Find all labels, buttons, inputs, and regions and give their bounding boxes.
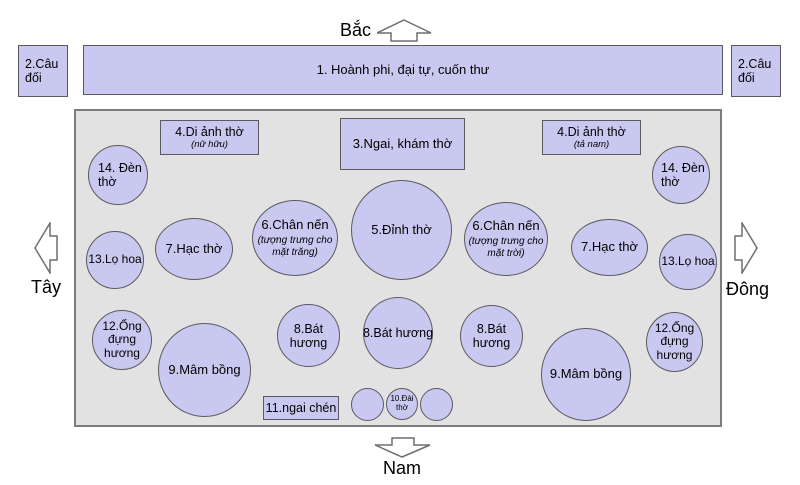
di-anh-right-box: 4.Di ảnh thờ (tả nam): [542, 120, 641, 155]
south-label: Nam: [383, 458, 421, 479]
chan-nen-right-title: 6.Chân nến: [472, 219, 539, 234]
den-tho-left-circle: 14. Đèn thờ: [88, 145, 148, 205]
ong-dung-huong-right-circle: 12.Ống đựng hương: [646, 312, 703, 372]
den-tho-right-label: 14. Đèn thờ: [661, 161, 707, 189]
lo-hoa-left-label: 13.Lọ hoa: [88, 253, 141, 266]
banner-box: 1. Hoành phi, đại tự, cuốn thư: [83, 45, 723, 95]
di-anh-right-subtitle: (tả nam): [574, 140, 609, 151]
ngai-chen-box: 11.ngai chén: [263, 396, 339, 420]
chan-nen-left-subtitle: (tượng trưng cho mặt trăng): [255, 235, 335, 258]
ngai-chen-label: 11.ngai chén: [266, 401, 337, 415]
di-anh-left-subtitle: (nữ hữu): [191, 140, 228, 151]
east-label: Đông: [726, 279, 769, 300]
chan-nen-left-title: 6.Chân nến: [261, 218, 328, 233]
mam-bong-right-circle: 9.Mâm bồng: [541, 328, 631, 421]
lo-hoa-left-circle: 13.Lọ hoa: [86, 231, 144, 289]
mam-bong-right-label: 9.Mâm bồng: [550, 367, 622, 382]
dai-tho-label: 10.Đài thờ: [387, 395, 417, 413]
chan-nen-left-circle: 6.Chân nến (tượng trưng cho mặt trăng): [252, 200, 338, 276]
hac-tho-right-label: 7.Hạc thờ: [581, 240, 638, 255]
bat-huong-left-label: 8.Bát hương: [280, 322, 337, 350]
hac-tho-left-ellipse: 7.Hạc thờ: [155, 218, 233, 280]
ngai-kham-label: 3.Ngai, khám thờ: [353, 137, 453, 152]
dinh-tho-label: 5.Đỉnh thờ: [371, 223, 432, 238]
west-arrow-icon: [34, 222, 58, 274]
di-anh-right-title: 4.Di ảnh thờ: [557, 125, 626, 139]
chan-nen-right-subtitle: (tượng trưng cho mặt trời): [467, 236, 545, 259]
bat-huong-center-circle: 8.Bát hương: [363, 297, 433, 369]
di-anh-left-title: 4.Di ảnh thờ: [175, 125, 244, 139]
hac-tho-left-label: 7.Hạc thờ: [166, 242, 223, 257]
ngai-kham-box: 3.Ngai, khám thờ: [340, 118, 465, 170]
north-label: Bắc: [340, 20, 371, 41]
couplet-right-box: 2.Câu đối: [731, 45, 781, 97]
bat-huong-right-circle: 8.Bát hương: [460, 305, 523, 367]
bat-huong-center-label: 8.Bát hương: [363, 326, 433, 340]
ong-dung-huong-right-label: 12.Ống đựng hương: [649, 322, 700, 362]
dai-tho-circle: 10.Đài thờ: [386, 388, 418, 420]
south-arrow-icon: [374, 437, 431, 458]
small-cup-right-circle: [420, 388, 453, 421]
mam-bong-left-label: 9.Mâm bồng: [168, 363, 240, 378]
altar-layout-diagram: Bắc 2.Câu đối 1. Hoành phi, đại tự, cuốn…: [0, 0, 800, 485]
den-tho-right-circle: 14. Đèn thờ: [652, 146, 710, 204]
mam-bong-left-circle: 9.Mâm bồng: [158, 323, 251, 417]
small-cup-left-circle: [351, 388, 384, 421]
couplet-left-label: 2.Câu đối: [25, 57, 65, 85]
north-arrow-icon: [377, 19, 432, 42]
hac-tho-right-ellipse: 7.Hạc thờ: [571, 219, 648, 276]
bat-huong-left-circle: 8.Bát hương: [277, 304, 340, 367]
chan-nen-right-circle: 6.Chân nến (tượng trưng cho mặt trời): [464, 202, 548, 276]
dinh-tho-circle: 5.Đỉnh thờ: [351, 180, 452, 280]
ong-dung-huong-left-label: 12.Ống đựng hương: [95, 320, 149, 360]
bat-huong-right-label: 8.Bát hương: [463, 322, 520, 350]
east-arrow-icon: [734, 222, 758, 274]
lo-hoa-right-circle: 13.Lọ hoa: [659, 234, 717, 290]
den-tho-left-label: 14. Đèn thờ: [98, 161, 145, 189]
couplet-right-label: 2.Câu đối: [738, 57, 778, 85]
lo-hoa-right-label: 13.Lọ hoa: [661, 255, 714, 268]
couplet-left-box: 2.Câu đối: [18, 45, 68, 97]
ong-dung-huong-left-circle: 12.Ống đựng hương: [92, 310, 152, 370]
di-anh-left-box: 4.Di ảnh thờ (nữ hữu): [160, 120, 259, 155]
west-label: Tây: [31, 277, 61, 298]
banner-label: 1. Hoành phi, đại tự, cuốn thư: [317, 63, 490, 78]
